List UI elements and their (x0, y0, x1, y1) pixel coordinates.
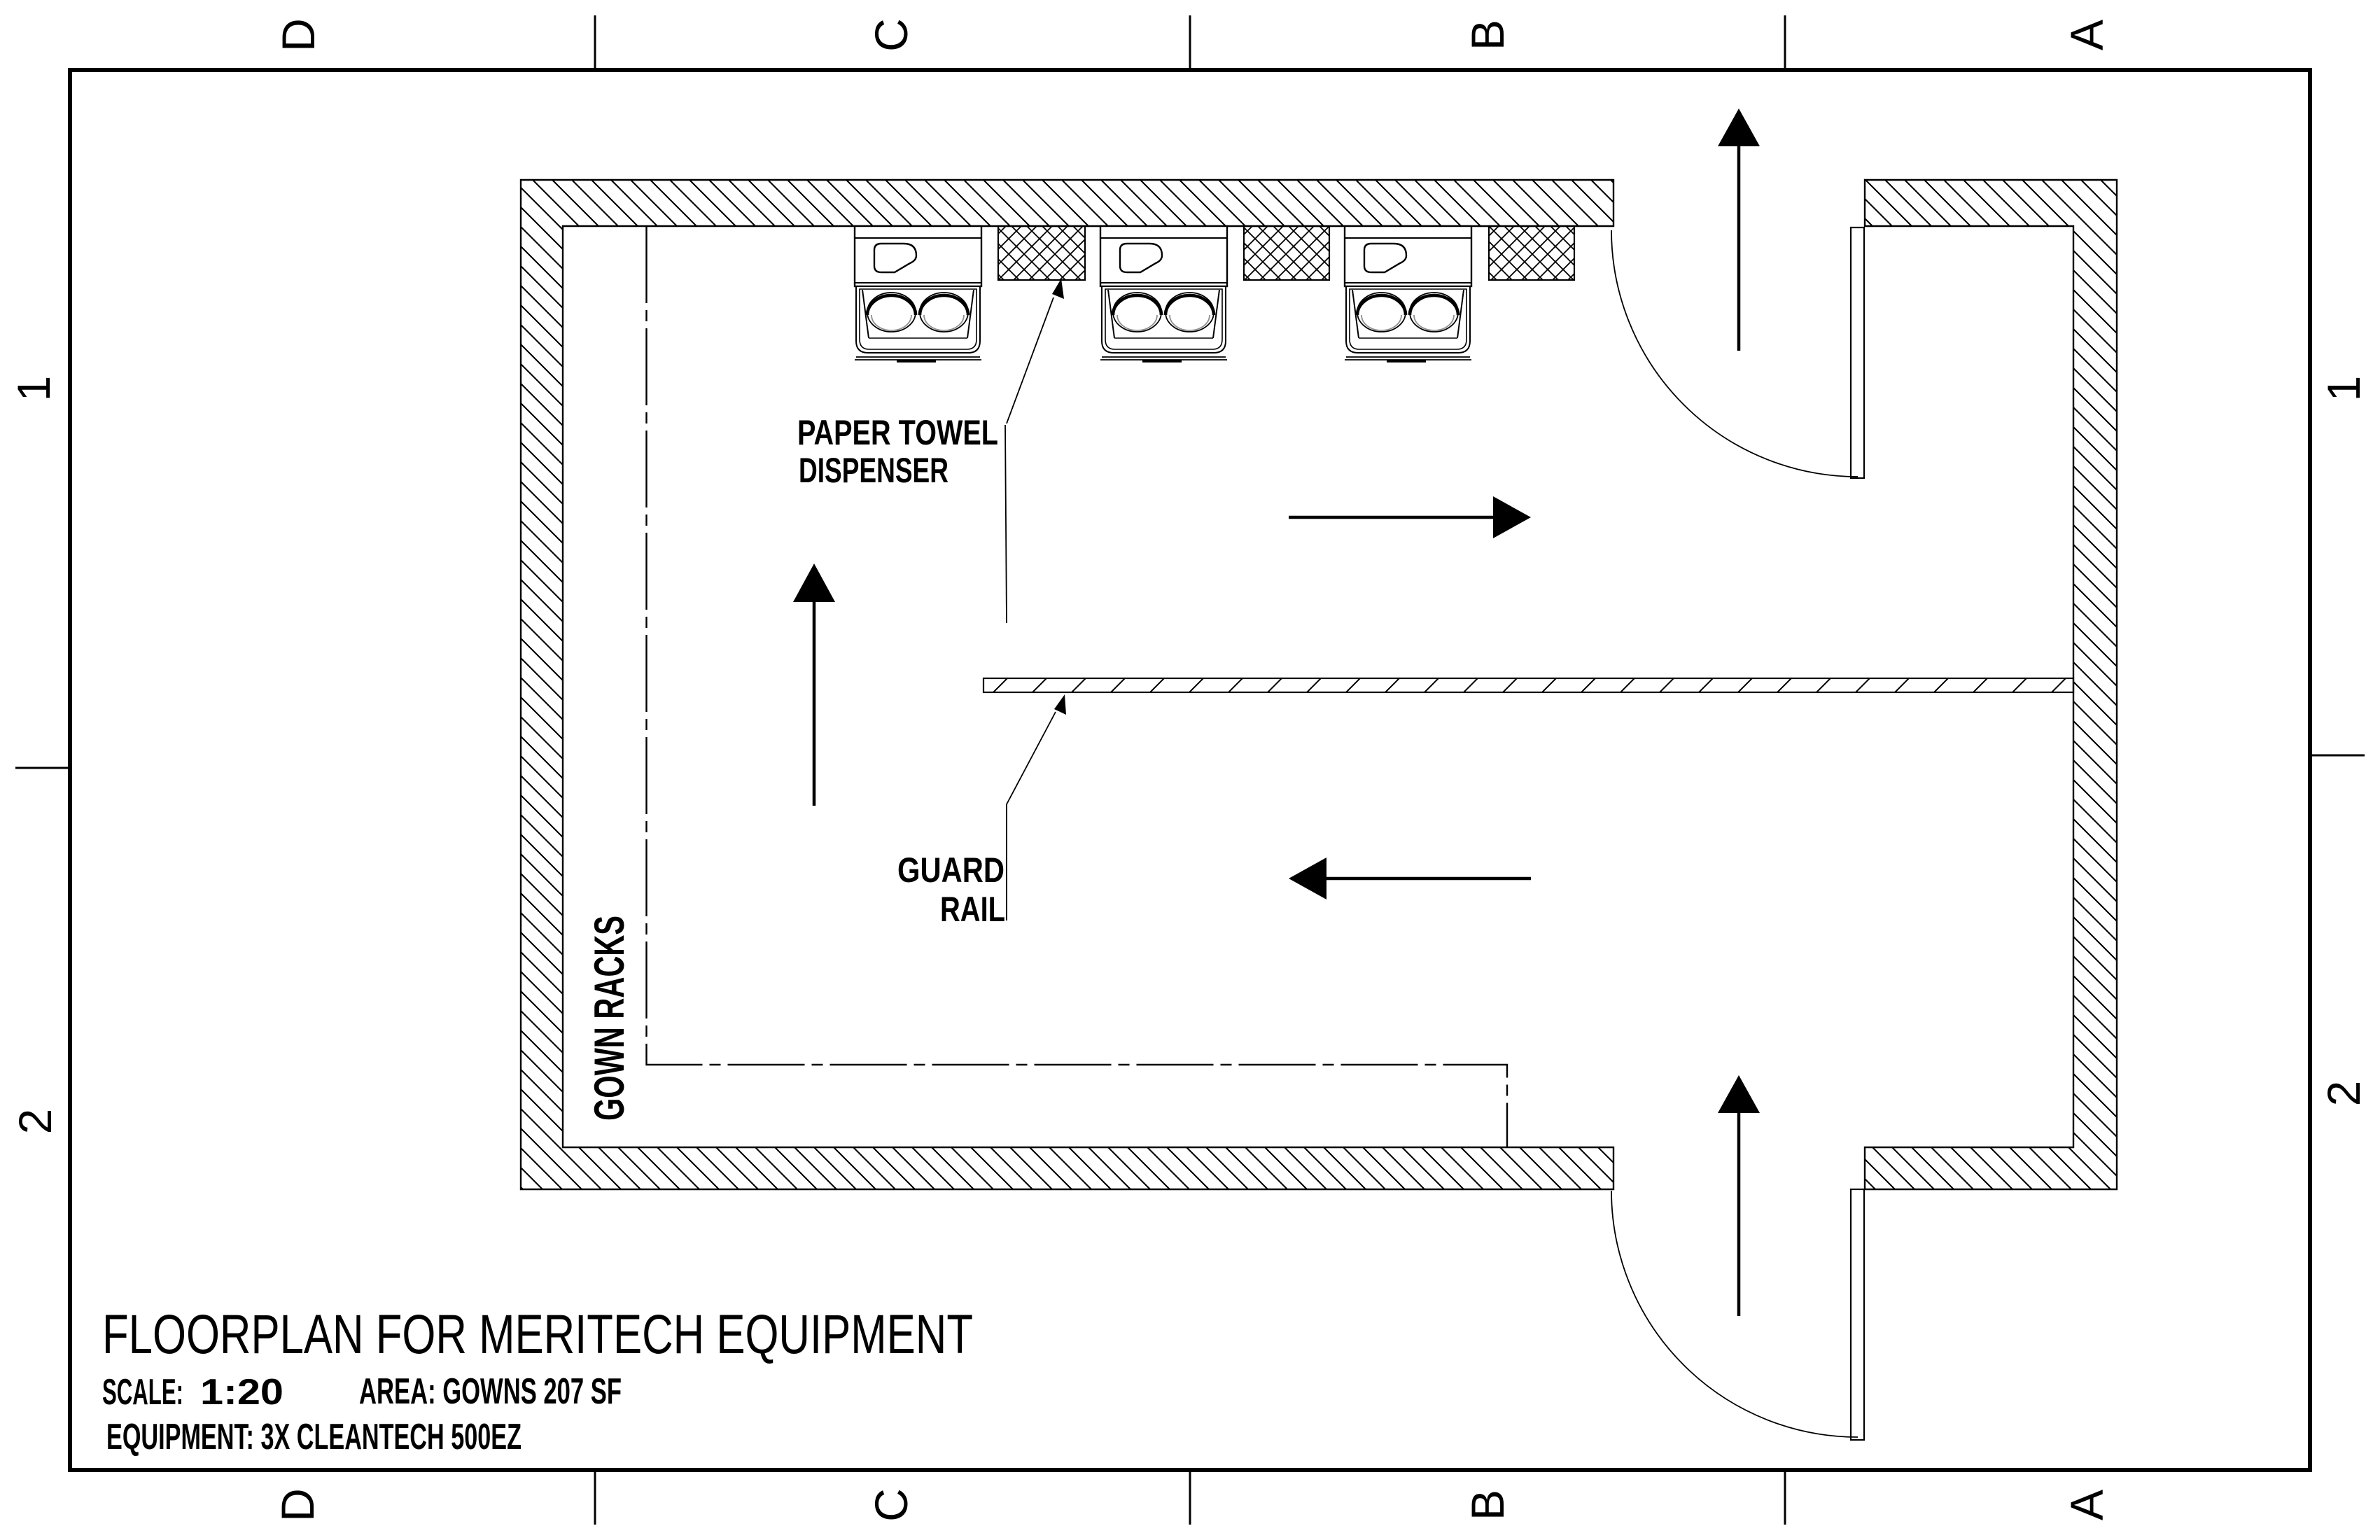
svg-text:GOWN RACKS: GOWN RACKS (586, 916, 633, 1121)
svg-text:RAIL: RAIL (940, 890, 1005, 929)
svg-text:PAPER TOWEL: PAPER TOWEL (797, 413, 998, 452)
svg-text:D: D (272, 1488, 323, 1522)
svg-text:B: B (1462, 1490, 1513, 1520)
svg-text:C: C (865, 1488, 917, 1522)
svg-text:1:20: 1:20 (200, 1372, 283, 1413)
svg-text:A: A (2061, 1490, 2113, 1520)
svg-text:B: B (1462, 20, 1513, 50)
svg-text:1: 1 (8, 376, 59, 402)
svg-text:1: 1 (2318, 376, 2369, 402)
svg-text:GUARD: GUARD (897, 850, 1004, 890)
svg-text:SCALE:: SCALE: (102, 1372, 183, 1413)
svg-text:D: D (272, 18, 324, 52)
svg-text:AREA: GOWNS 207 SF: AREA: GOWNS 207 SF (359, 1371, 622, 1412)
svg-text:2: 2 (2318, 1081, 2369, 1107)
svg-text:DISPENSER: DISPENSER (799, 451, 948, 490)
svg-text:C: C (865, 18, 917, 52)
svg-text:A: A (2061, 20, 2113, 50)
svg-text:EQUIPMENT: 3X CLEANTECH 500EZ: EQUIPMENT: 3X CLEANTECH 500EZ (106, 1417, 521, 1457)
svg-text:2: 2 (9, 1109, 61, 1135)
svg-text:FLOORPLAN FOR MERITECH EQUIPME: FLOORPLAN FOR MERITECH EQUIPMENT (102, 1303, 973, 1365)
